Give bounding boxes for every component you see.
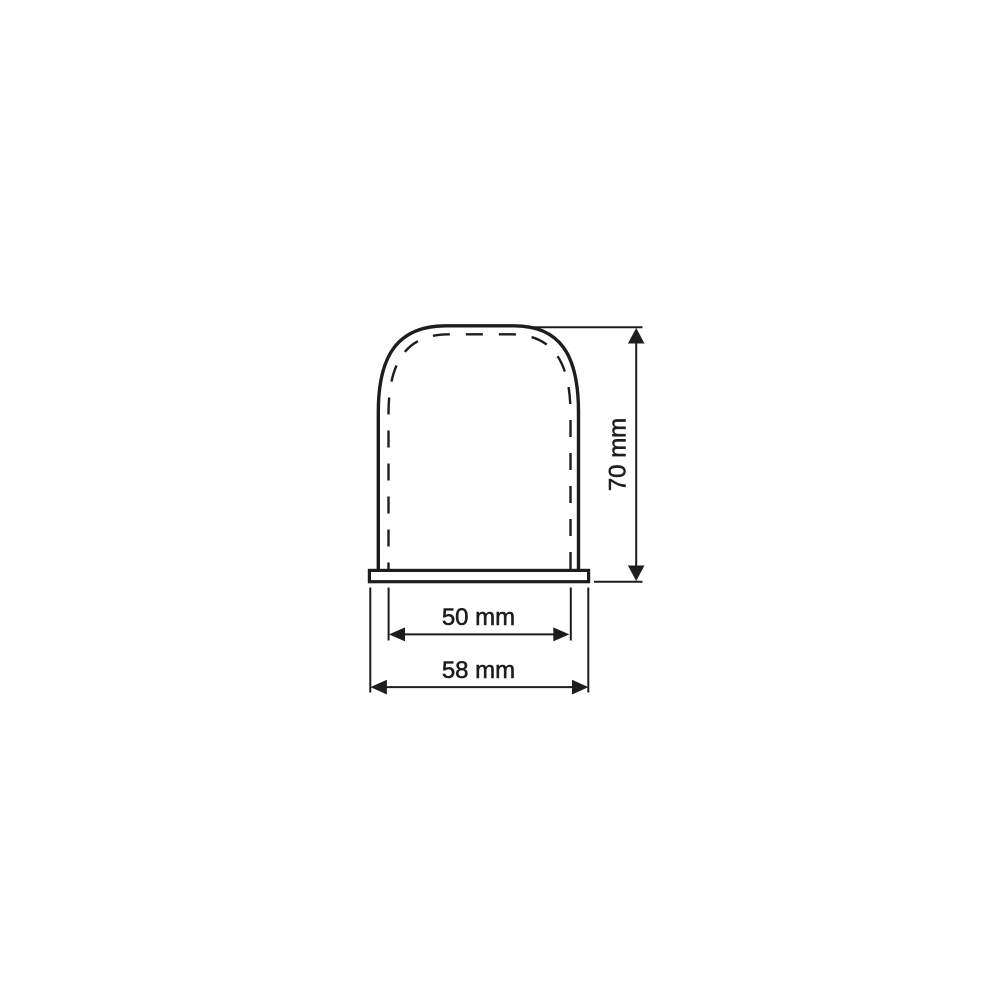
svg-text:50 mm: 50 mm xyxy=(442,604,515,631)
svg-text:58 mm: 58 mm xyxy=(442,657,515,684)
svg-text:70 mm: 70 mm xyxy=(605,418,632,491)
